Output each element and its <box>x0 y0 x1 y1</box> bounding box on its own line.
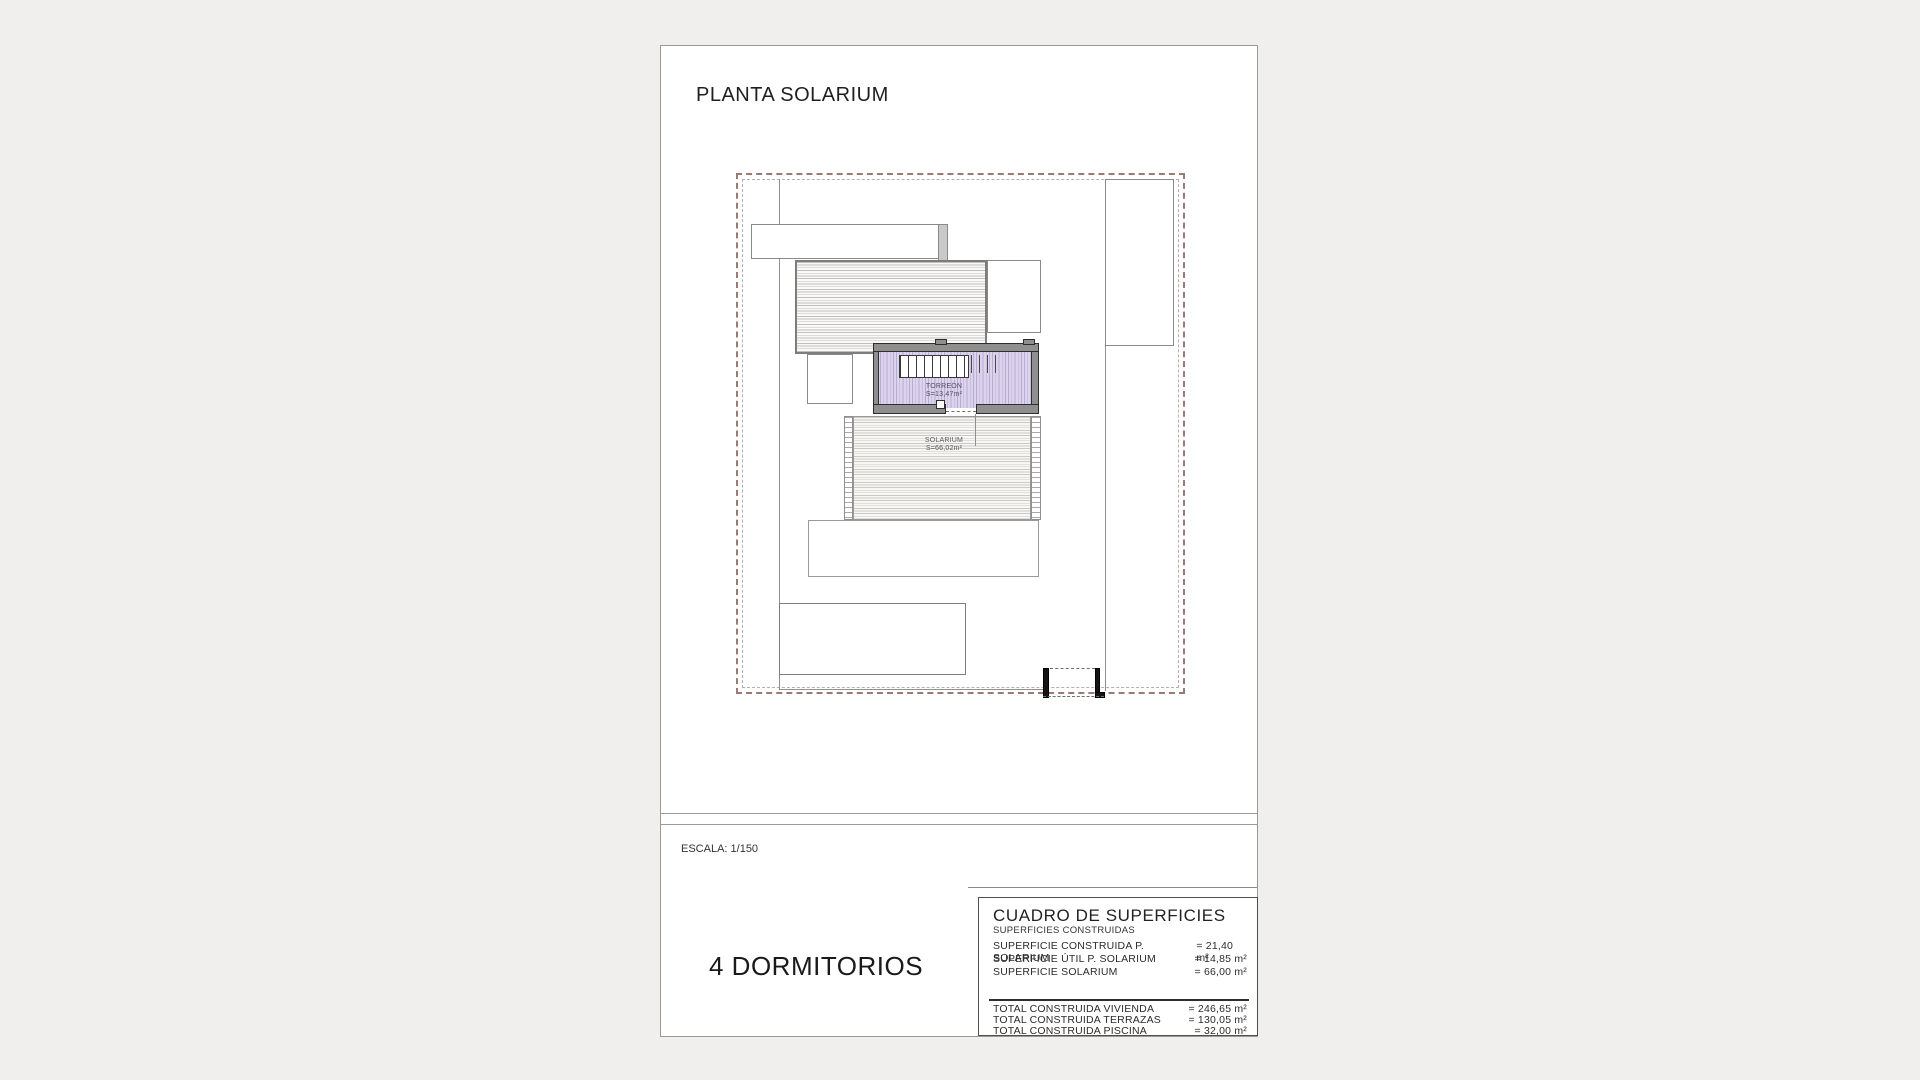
solarium-label: SOLARIUM S=66,02m² <box>894 437 994 454</box>
row-label: TOTAL CONSTRUIDA PISCINA <box>993 1025 1147 1037</box>
torreon-wall-right <box>1031 351 1039 409</box>
torreon: TORREÓN S=13,47m² <box>873 343 1039 414</box>
solarium-railing-left <box>844 416 853 520</box>
torreon-wall-bottom-right <box>976 404 1039 414</box>
gate-opening-top <box>1050 668 1095 669</box>
torreon-name: TORREÓN <box>889 383 999 391</box>
table-row: TOTAL CONSTRUIDA PISCINA = 32,00 m² <box>993 1025 1247 1037</box>
gate-post-left <box>1043 668 1049 698</box>
page-title: PLANTA SOLARIUM <box>696 84 889 107</box>
surfaces-table-subtitle: SUPERFICIES CONSTRUIDAS <box>993 925 1135 936</box>
screen-backdrop: PLANTA SOLARIUM SOLARIUM S=66,02m² <box>0 0 1920 1080</box>
torreon-wall-tab-2 <box>1023 339 1035 345</box>
lower-left-rect <box>779 603 966 675</box>
torreon-wall-top <box>873 343 1039 352</box>
footprint-line-south <box>779 689 1043 690</box>
row-value: = 32,00 m² <box>1195 1025 1248 1037</box>
stairs-extension <box>971 355 996 373</box>
solarium-area: S=66,02m² <box>894 445 994 453</box>
solarium-deck: SOLARIUM S=66,02m² <box>853 416 1031 520</box>
row-label: SUPERFICIE SOLARIUM <box>993 966 1118 978</box>
table-separator <box>989 999 1249 1001</box>
row-label: SUPERFICIE ÚTIL P. SOLARIUM <box>993 953 1156 965</box>
torreon-area: S=13,47m² <box>889 391 999 399</box>
solarium-name: SOLARIUM <box>894 437 994 445</box>
torreon-column <box>936 400 945 409</box>
titleblock-line-1 <box>661 813 1257 814</box>
surfaces-table-title: CUADRO DE SUPERFICIES <box>993 906 1226 926</box>
titleblock-line-2 <box>661 824 1257 825</box>
east-annex-rect <box>1105 179 1174 346</box>
pergola-connector <box>938 224 948 263</box>
roof-annex-rect <box>987 260 1041 333</box>
scale-label: ESCALA: 1/150 <box>681 843 758 855</box>
torreon-wall-tab-1 <box>935 339 947 345</box>
gate-opening-bottom <box>1043 696 1104 697</box>
footprint-line-east <box>1105 346 1106 691</box>
surfaces-table: CUADRO DE SUPERFICIES SUPERFICIES CONSTR… <box>978 897 1258 1036</box>
bedrooms-label: 4 DORMITORIOS <box>709 951 923 982</box>
roof-lower-rect <box>807 354 853 404</box>
table-top-rule <box>968 887 1257 888</box>
torreon-label: TORREÓN S=13,47m² <box>889 383 999 400</box>
table-row: SUPERFICIE SOLARIUM = 66,00 m² <box>993 966 1247 978</box>
roof-hatch <box>795 260 987 354</box>
row-value: = 66,00 m² <box>1195 966 1248 978</box>
table-row: SUPERFICIE ÚTIL P. SOLARIUM = 14,85 m² <box>993 953 1247 965</box>
torreon-door-opening <box>946 411 976 412</box>
row-value: = 14,85 m² <box>1195 953 1248 965</box>
gate-post-right-foot <box>1095 692 1105 698</box>
stairs <box>899 355 969 378</box>
terrace-outline <box>808 520 1039 577</box>
pergola-strip <box>751 224 948 259</box>
drawing-sheet: PLANTA SOLARIUM SOLARIUM S=66,02m² <box>660 45 1258 1037</box>
stair-leader-line <box>975 414 976 446</box>
solarium-railing-right <box>1031 416 1041 520</box>
